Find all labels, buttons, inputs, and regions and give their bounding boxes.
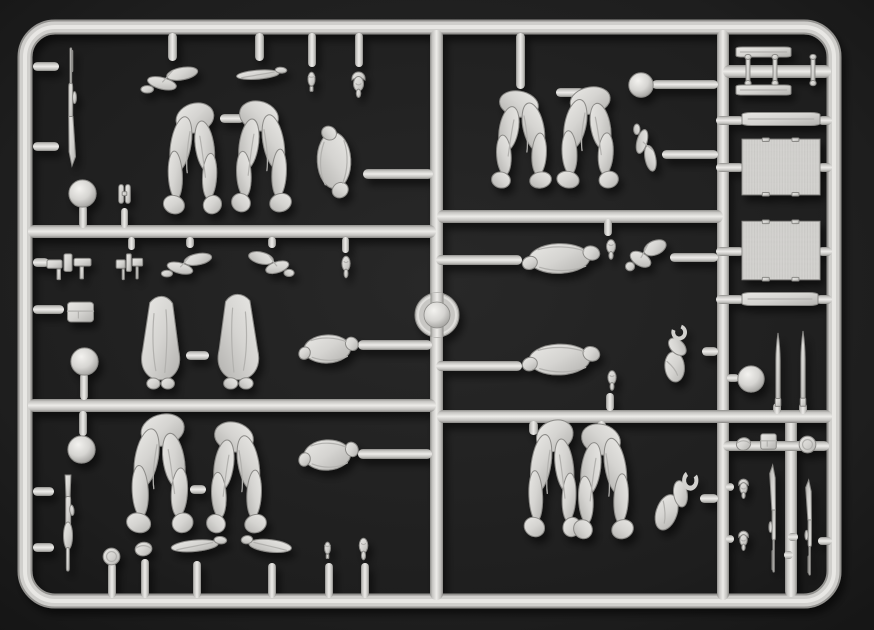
runner-4 [28, 399, 436, 412]
stub-17 [670, 253, 718, 262]
stub-24 [80, 373, 88, 400]
part-plank-2 [742, 293, 818, 306]
stub-49 [716, 295, 744, 304]
stub-58 [818, 537, 832, 545]
stub-21 [358, 449, 432, 459]
stub-30 [268, 237, 276, 248]
stub-45 [716, 163, 744, 172]
stub-10 [516, 33, 525, 89]
model-sprue-photo [0, 0, 874, 630]
stub-18 [702, 347, 718, 356]
stub-6 [308, 33, 316, 67]
part-disc-right [799, 436, 816, 453]
stub-55 [726, 535, 734, 543]
runner-1 [717, 30, 729, 600]
stub-26 [33, 487, 54, 496]
stub-42 [361, 563, 369, 598]
runner-6 [437, 410, 832, 423]
stub-4 [168, 33, 177, 61]
part-helmet-left-3 [68, 436, 95, 463]
sprue-svg [0, 0, 874, 630]
stub-16 [436, 361, 522, 371]
stub-32 [186, 351, 209, 360]
part-pouch-right [761, 434, 777, 449]
part-helmet-right-1 [738, 366, 764, 392]
part-helmet-left-1 [69, 180, 96, 207]
stub-19 [606, 393, 614, 411]
stub-36 [700, 494, 718, 503]
stub-0 [33, 62, 59, 71]
part-helmet-center-1 [629, 73, 653, 97]
stub-5 [255, 33, 264, 61]
stub-3 [121, 208, 128, 228]
runner-5 [437, 210, 723, 223]
stub-12 [652, 80, 718, 89]
stub-40 [268, 563, 276, 598]
stub-27 [33, 543, 54, 552]
part-helmet-left-2 [71, 348, 98, 375]
runner-2 [785, 412, 797, 597]
part-tarp-panel-2 [742, 220, 820, 281]
stub-43 [716, 116, 744, 125]
part-plank-1 [742, 113, 820, 126]
part-tarp-panel-1 [742, 138, 820, 196]
runner-3 [28, 225, 436, 238]
stub-15 [436, 255, 522, 265]
part-disc-bottom [103, 548, 120, 565]
sprue-medallion [415, 293, 459, 337]
stub-56 [784, 551, 793, 559]
stub-23 [33, 305, 64, 314]
stub-54 [726, 483, 734, 491]
stub-41 [325, 563, 333, 598]
part-post-1 [745, 54, 751, 85]
part-rack-bar-2 [736, 85, 791, 95]
stub-1 [33, 142, 59, 151]
part-post-2 [772, 54, 778, 85]
part-post-3 [810, 54, 816, 85]
stub-57 [788, 533, 798, 541]
stub-39 [193, 561, 201, 598]
stub-51 [727, 374, 739, 382]
stub-33 [190, 485, 206, 494]
stub-2 [79, 205, 87, 228]
stub-13 [662, 150, 718, 159]
stub-34 [529, 421, 538, 435]
stub-7 [355, 33, 363, 67]
stub-28 [128, 237, 135, 250]
stub-47 [716, 247, 744, 256]
part-pouch-left [68, 302, 94, 322]
stub-25 [79, 411, 87, 436]
stub-31 [342, 237, 349, 253]
stub-38 [141, 559, 149, 598]
stub-9 [363, 169, 433, 179]
stub-37 [108, 563, 116, 598]
part-rack-bar-1 [736, 47, 791, 57]
stub-14 [604, 219, 612, 236]
stub-20 [358, 340, 432, 350]
stub-29 [186, 237, 194, 248]
